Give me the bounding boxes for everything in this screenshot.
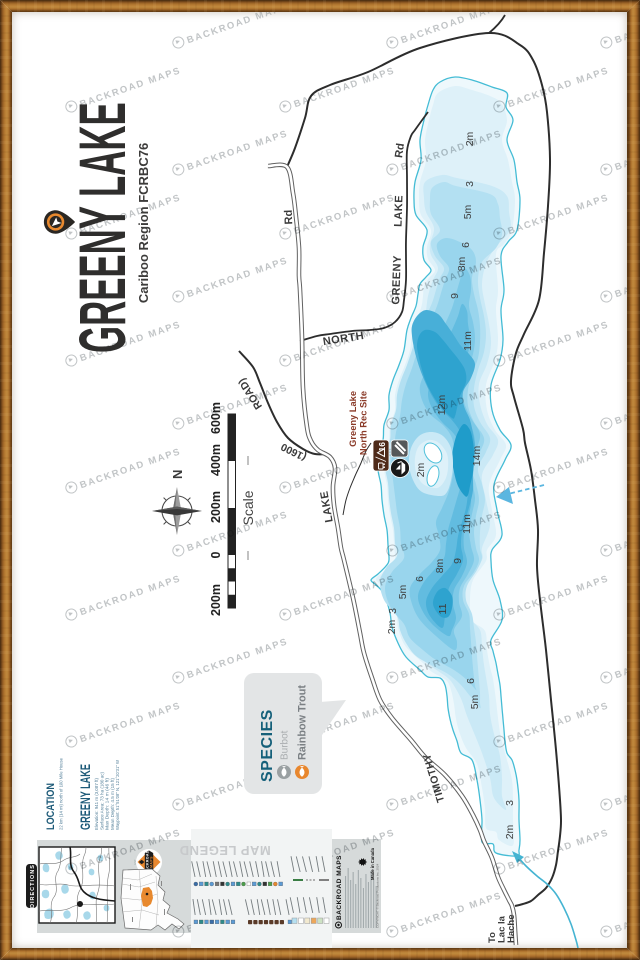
svg-text:MAP LEGEND: MAP LEGEND (179, 843, 270, 858)
